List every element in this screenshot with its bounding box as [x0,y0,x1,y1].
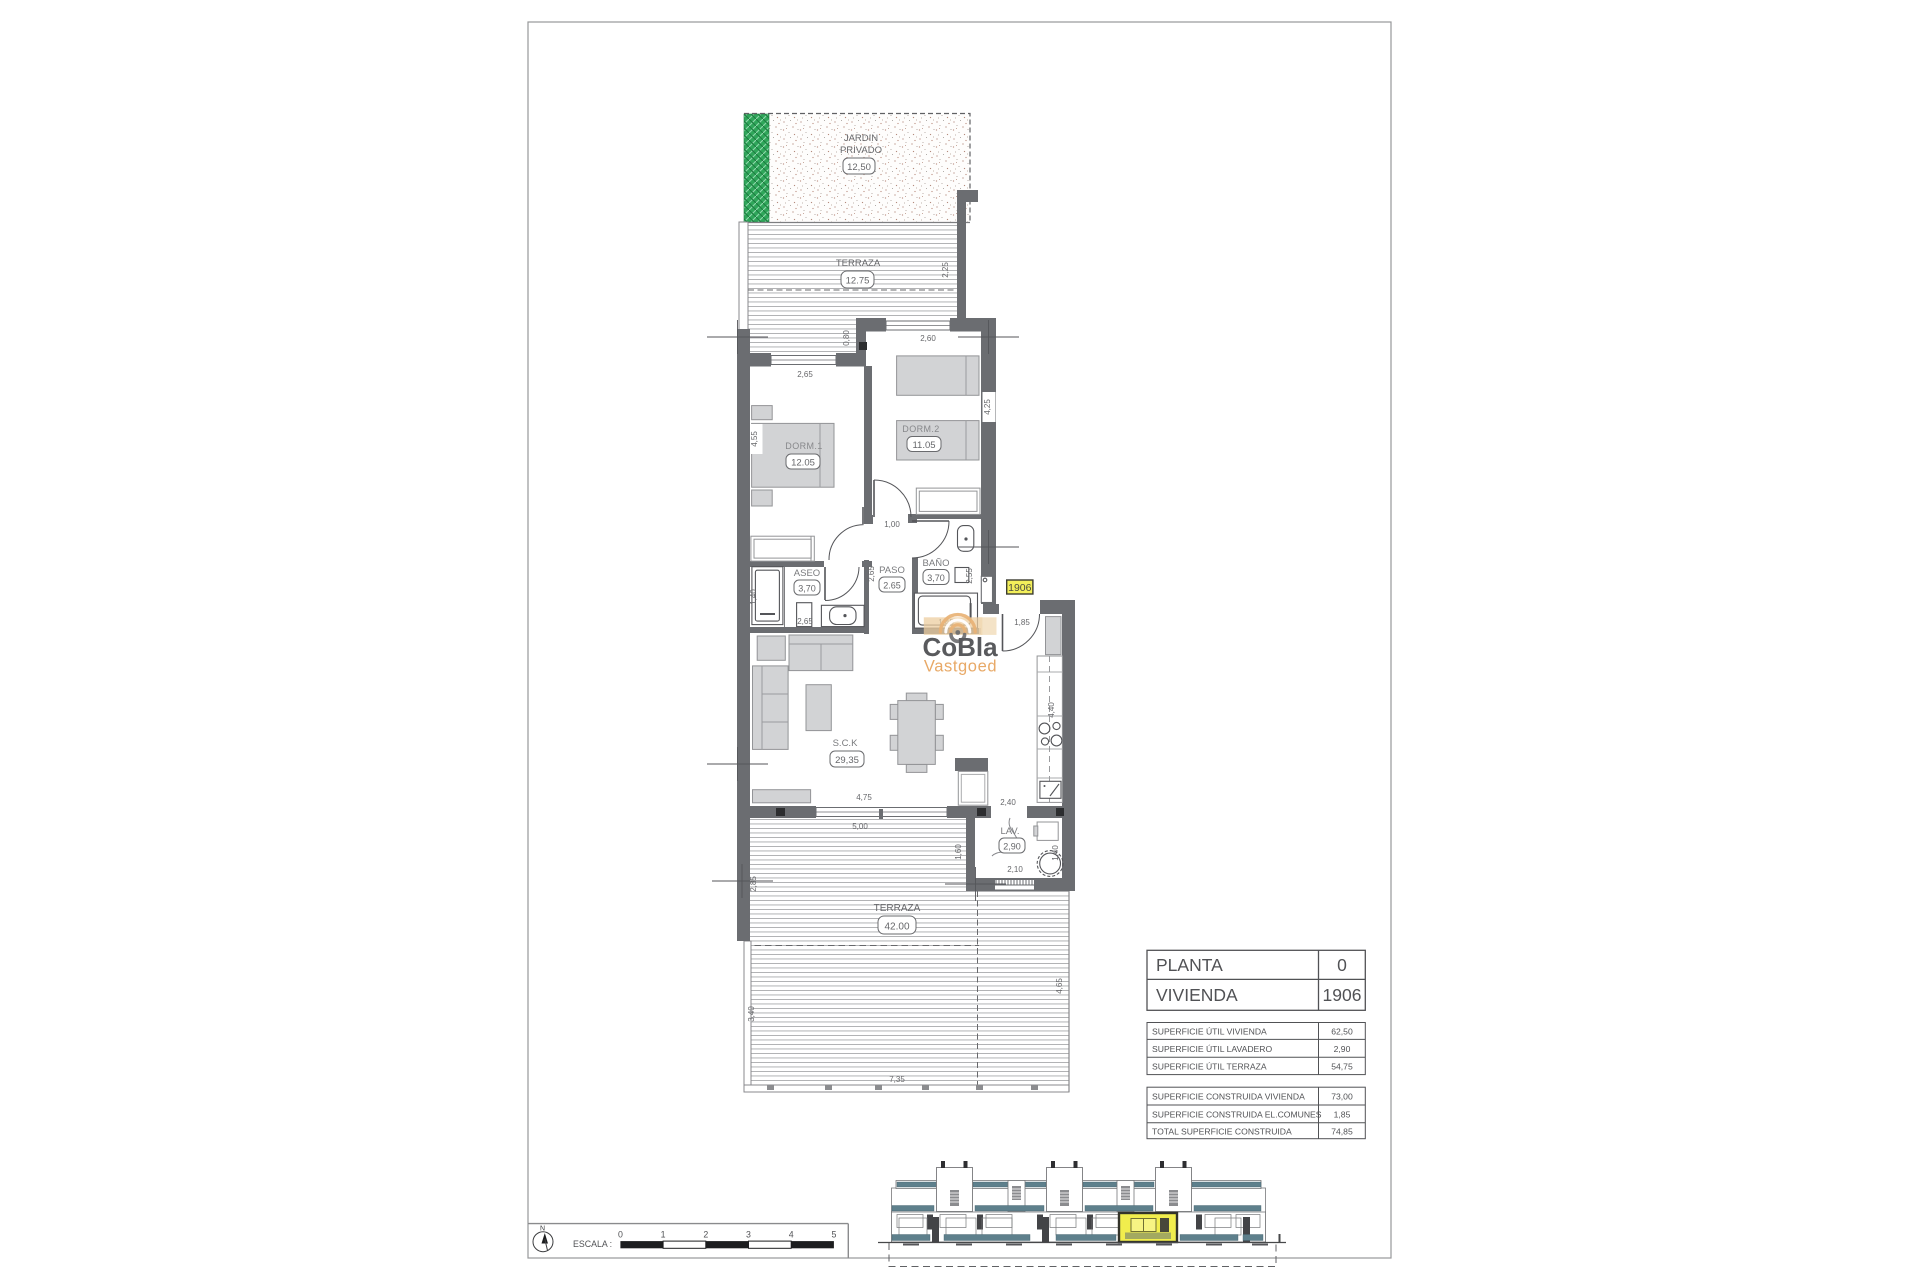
svg-text:2,10: 2,10 [1007,865,1023,874]
svg-text:JARDIN: JARDIN [844,133,878,144]
svg-text:ASEO: ASEO [794,568,820,579]
svg-text:1906: 1906 [1008,582,1032,594]
svg-text:DORM.1: DORM.1 [785,441,822,451]
svg-text:3: 3 [746,1230,751,1240]
svg-text:5,00: 5,00 [852,822,868,831]
svg-text:2: 2 [703,1230,708,1240]
svg-text:4,75: 4,75 [856,793,872,802]
svg-text:SUPERFICIE CONSTRUIDA VIVIENDA: SUPERFICIE CONSTRUIDA VIVIENDA [1152,1092,1305,1102]
svg-text:1,40: 1,40 [749,589,758,605]
svg-text:3,40: 3,40 [747,1006,756,1022]
svg-text:4,65: 4,65 [1055,978,1064,994]
svg-text:4,40: 4,40 [1047,702,1056,718]
svg-text:12,50: 12,50 [847,162,871,173]
svg-text:BAÑO: BAÑO [923,558,950,569]
svg-text:TERRAZA: TERRAZA [836,258,881,269]
svg-text:1,60: 1,60 [954,844,963,860]
svg-text:DORM.2: DORM.2 [902,424,939,434]
svg-text:ESCALA :: ESCALA : [573,1239,612,1249]
svg-text:29,35: 29,35 [835,755,859,766]
svg-text:1,85: 1,85 [1014,618,1030,627]
svg-text:3,70: 3,70 [798,584,816,594]
svg-text:PASO: PASO [879,565,905,576]
svg-text:N: N [540,1226,545,1233]
svg-text:11.05: 11.05 [912,440,935,451]
svg-text:2.65: 2.65 [883,581,901,591]
svg-text:0: 0 [618,1230,623,1240]
svg-text:0: 0 [1337,955,1347,975]
svg-text:2,90: 2,90 [1334,1044,1351,1054]
svg-text:73,00: 73,00 [1331,1092,1353,1102]
svg-text:1906: 1906 [1323,985,1362,1005]
svg-text:LAV.: LAV. [1000,826,1019,837]
svg-text:12.05: 12.05 [791,458,815,469]
svg-text:SUPERFICIE CONSTRUIDA EL.COMUN: SUPERFICIE CONSTRUIDA EL.COMUNES [1152,1110,1322,1120]
svg-text:TERRAZA: TERRAZA [874,903,921,914]
svg-text:2,40: 2,40 [1000,798,1016,807]
svg-text:S.C.K: S.C.K [833,738,858,749]
svg-text:2,25: 2,25 [941,262,950,278]
svg-text:2,65: 2,65 [867,566,876,582]
svg-text:Vastgoed: Vastgoed [924,658,997,676]
svg-text:SUPERFICIE ÚTIL VIVIENDA: SUPERFICIE ÚTIL VIVIENDA [1152,1027,1267,1037]
svg-text:PLANTA: PLANTA [1156,955,1223,975]
svg-text:2,65: 2,65 [797,370,813,379]
svg-text:1,85: 1,85 [1334,1110,1351,1120]
svg-text:1: 1 [661,1230,666,1240]
svg-text:4,25: 4,25 [983,399,992,415]
svg-text:7,35: 7,35 [889,1075,905,1084]
svg-text:2,85: 2,85 [749,876,758,892]
svg-text:1,40: 1,40 [1051,845,1060,861]
svg-text:SUPERFICIE ÚTIL LAVADERO: SUPERFICIE ÚTIL LAVADERO [1152,1044,1272,1054]
svg-text:2,55: 2,55 [965,568,974,584]
svg-text:4,55: 4,55 [750,431,759,447]
svg-text:1,00: 1,00 [884,520,900,529]
svg-text:74,85: 74,85 [1331,1127,1353,1137]
svg-text:VIVIENDA: VIVIENDA [1156,985,1238,1005]
svg-text:0,80: 0,80 [842,330,851,346]
svg-text:PRIVADO: PRIVADO [840,145,882,156]
svg-text:42.00: 42.00 [884,922,909,933]
svg-text:2,90: 2,90 [1003,842,1021,852]
svg-text:5: 5 [831,1230,836,1240]
svg-text:3,70: 3,70 [927,573,945,583]
svg-text:54,75: 54,75 [1331,1062,1353,1072]
svg-text:TOTAL SUPERFICIE CONSTRUIDA: TOTAL SUPERFICIE CONSTRUIDA [1152,1127,1292,1137]
svg-text:SUPERFICIE ÚTIL TERRAZA: SUPERFICIE ÚTIL TERRAZA [1152,1062,1267,1072]
svg-text:2,65: 2,65 [797,617,813,626]
svg-text:4: 4 [789,1230,794,1240]
svg-text:12.75: 12.75 [846,276,870,287]
svg-text:2,60: 2,60 [920,334,936,343]
svg-text:62,50: 62,50 [1331,1027,1353,1037]
